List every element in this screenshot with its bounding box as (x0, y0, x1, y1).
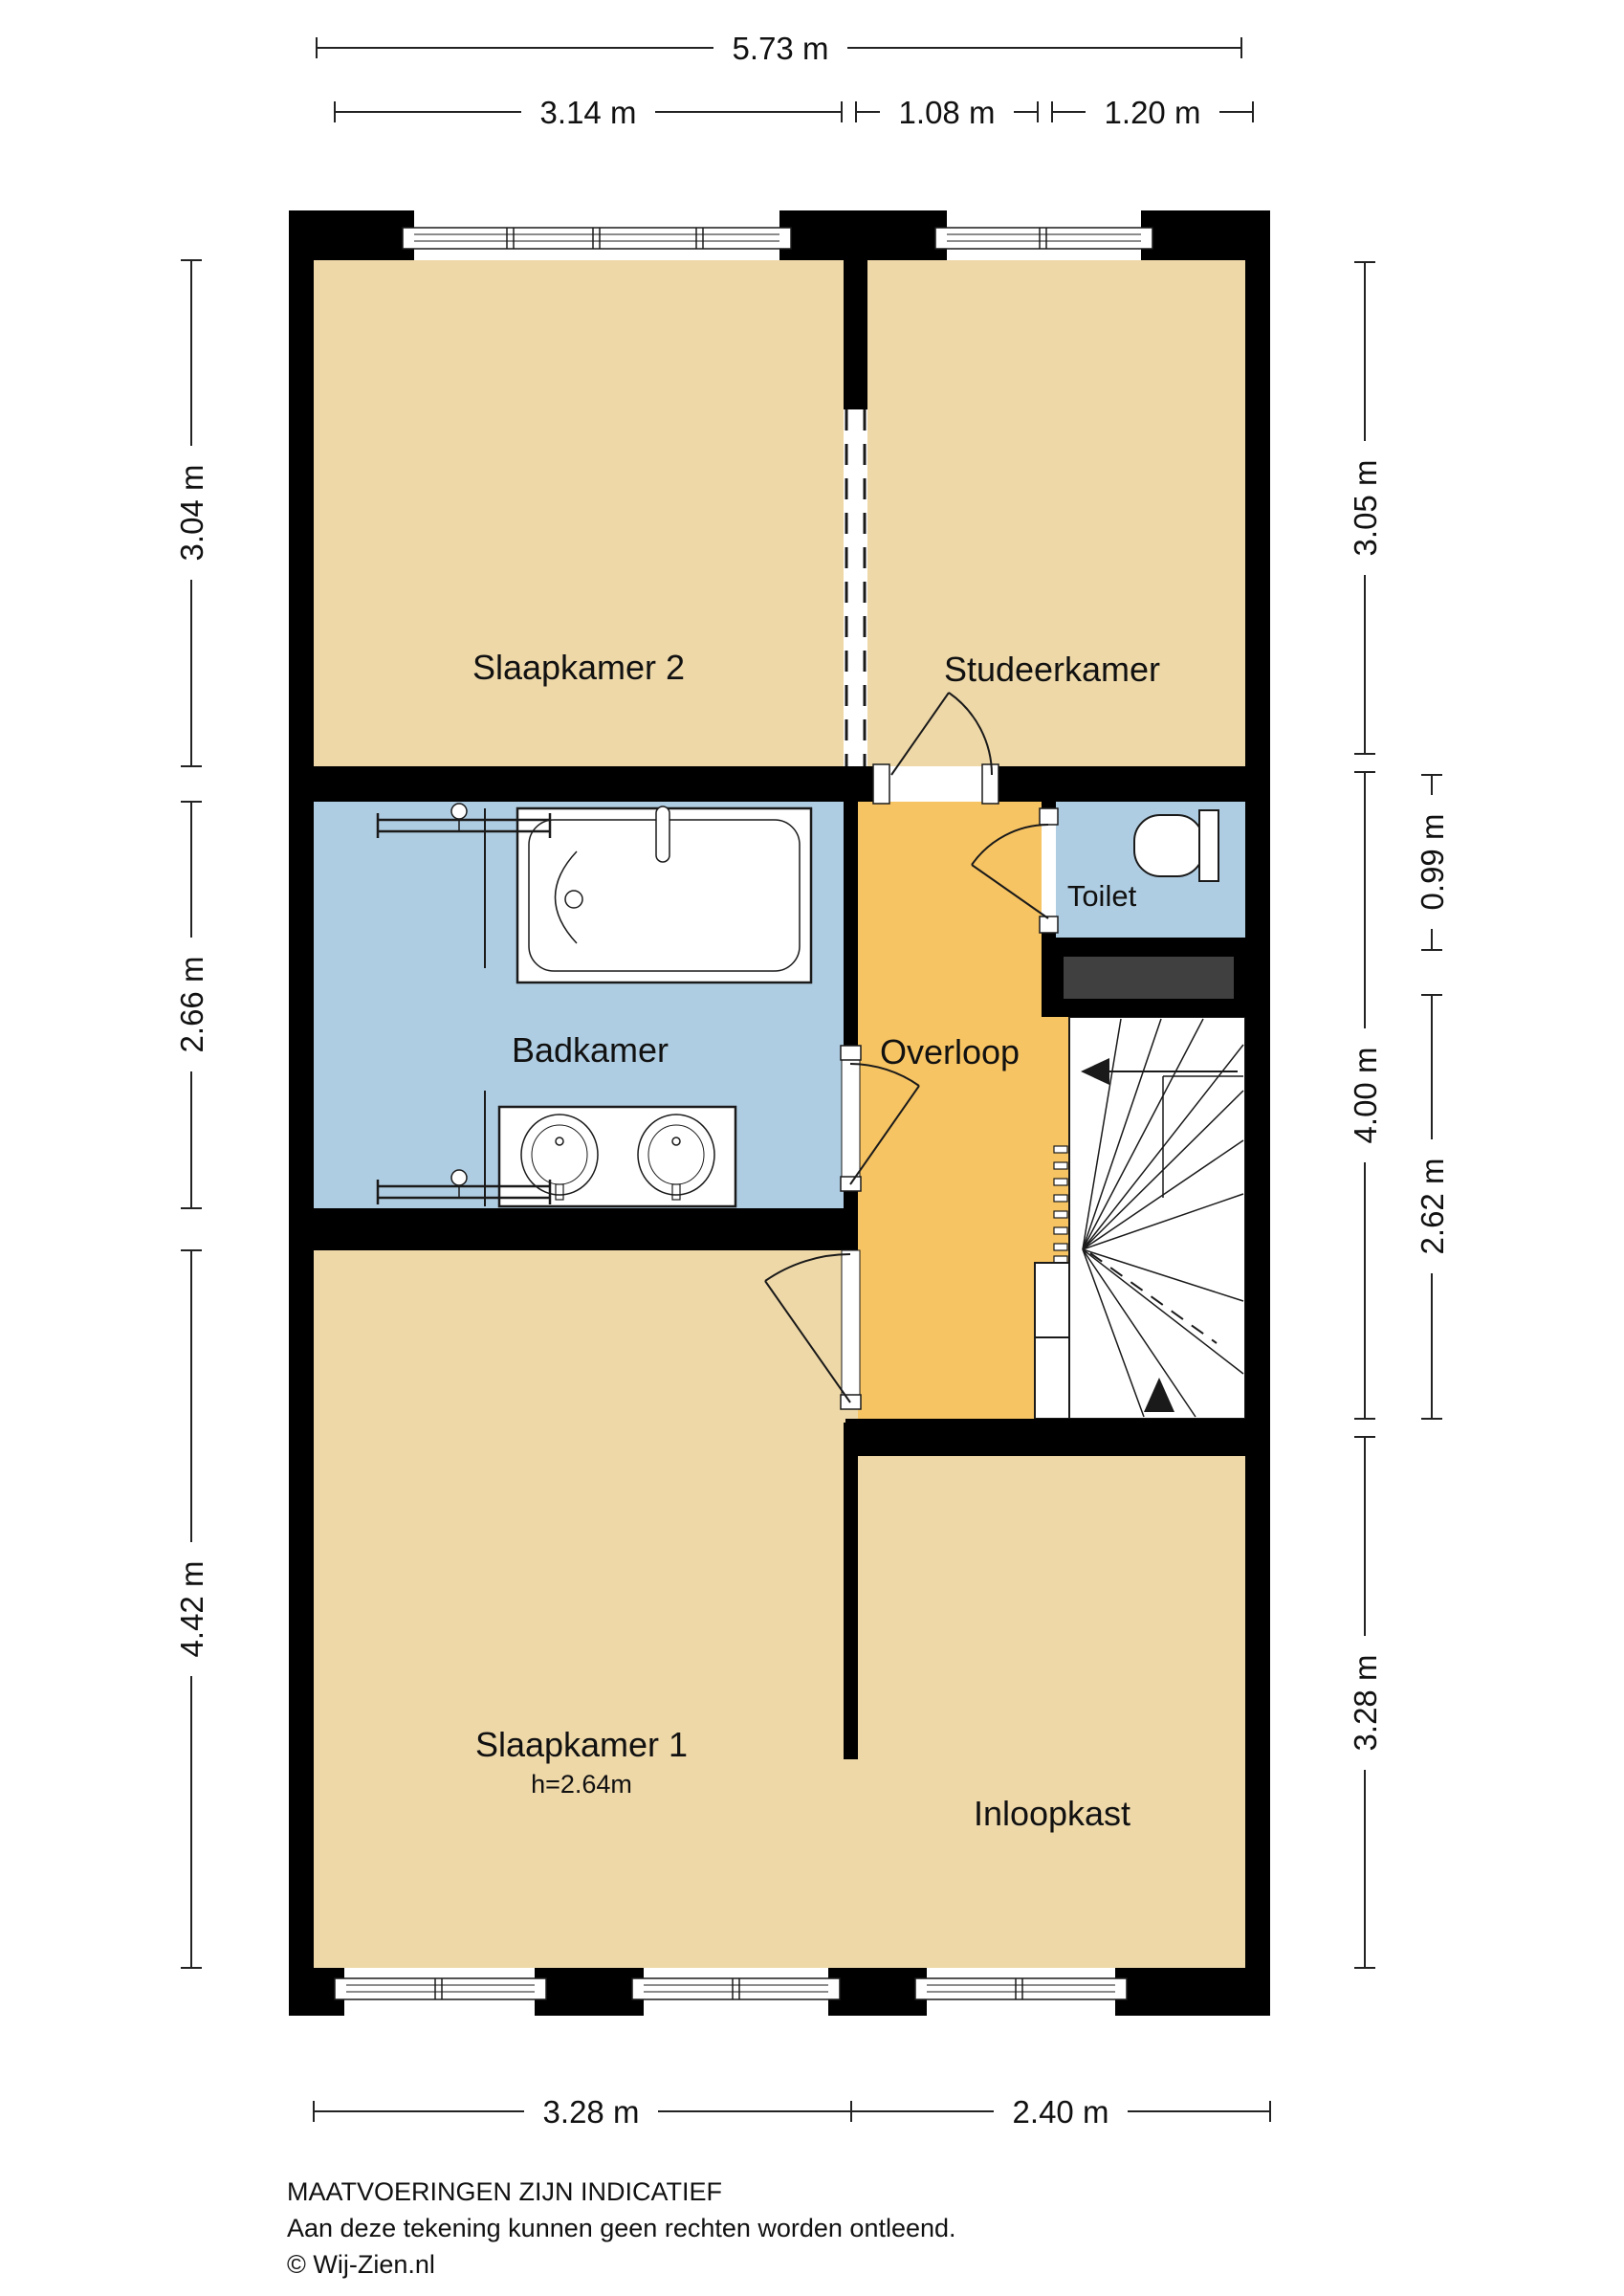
label-overloop: Overloop (880, 1032, 1020, 1071)
wall-north-row-left (314, 766, 875, 802)
dim-right-inner-1: 0.99 m (1415, 814, 1450, 911)
wall-sl1-inloopkast (844, 1423, 858, 1759)
dim-left-2: 2.66 m (174, 957, 209, 1053)
window-slaapkamer2 (403, 228, 791, 249)
opening-dashed-sl2-studeer (844, 409, 867, 766)
stairs-side-cabinet-upper (1035, 1263, 1069, 1337)
label-badkamer: Badkamer (512, 1030, 669, 1070)
footer-disclaimer-title: MAATVOERINGEN ZIJN INDICATIEF (287, 2177, 722, 2206)
label-toilet: Toilet (1067, 879, 1137, 913)
floorplan-canvas: Slaapkamer 2 Studeerkamer Badkamer Toile… (0, 0, 1624, 2296)
wall-bottom-corner-right (1115, 1968, 1270, 2016)
wall-bottom-pier2 (828, 1968, 927, 2016)
bathtub-faucet-icon (656, 806, 669, 862)
shaft (1064, 957, 1234, 999)
label-inloopkast: Inloopkast (974, 1794, 1130, 1833)
dim-top-seg3: 1.20 m (1105, 95, 1201, 130)
wall-north-row-right (997, 766, 1245, 802)
room-inloopkast-floor (858, 1456, 1245, 1968)
toilet-cistern (1199, 810, 1218, 881)
room-studeerkamer-floor (867, 260, 1245, 766)
window-slaapkamer1-left (335, 1978, 546, 1999)
footer-copyright: © Wij-Zien.nl (287, 2250, 435, 2279)
wall-overloop-bottom (845, 1419, 1270, 1456)
label-studeerkamer: Studeerkamer (944, 650, 1160, 689)
label-slaapkamer1-height: h=2.64m (531, 1770, 632, 1799)
dim-left-1: 3.04 m (174, 465, 209, 562)
dim-top-total: 5.73 m (733, 31, 829, 66)
footer: MAATVOERINGEN ZIJN INDICATIEF Aan deze t… (287, 2177, 956, 2279)
dim-bottom-2: 2.40 m (1013, 2094, 1109, 2130)
dim-top-seg2: 1.08 m (899, 95, 996, 130)
dim-bottom-1: 3.28 m (543, 2094, 640, 2130)
dim-right-1: 3.05 m (1348, 460, 1383, 557)
dim-top-seg1: 3.14 m (540, 95, 637, 130)
label-slaapkamer1: Slaapkamer 1 (475, 1725, 688, 1764)
stairs-side-cabinet-lower (1035, 1337, 1069, 1419)
dim-right-3: 3.28 m (1348, 1655, 1383, 1752)
room-slaapkamer1-floor (314, 1250, 858, 1968)
dim-left-3: 4.42 m (174, 1561, 209, 1658)
window-studeerkamer (935, 228, 1152, 249)
wall-top-corner-right (1141, 210, 1270, 260)
wall-outer-left (289, 210, 314, 2016)
wall-outer-right (1245, 210, 1270, 2016)
wall-badkamer-overloop (844, 802, 858, 1046)
window-slaapkamer1-right (632, 1978, 840, 1999)
wall-bottom-pier1 (535, 1968, 644, 2016)
washbasin-cabinet (499, 1107, 735, 1206)
dim-right-2: 4.00 m (1348, 1048, 1383, 1144)
wall-top-corner-left (289, 210, 414, 260)
footer-disclaimer-text: Aan deze tekening kunnen geen rechten wo… (287, 2214, 956, 2242)
wall-sl2-studeer (844, 260, 867, 409)
label-slaapkamer2: Slaapkamer 2 (472, 648, 685, 687)
window-inloopkast (915, 1978, 1127, 1999)
wall-top-pier (779, 210, 947, 260)
wall-badkamer-bottom (314, 1208, 858, 1250)
dim-right-inner-2: 2.62 m (1415, 1159, 1450, 1255)
room-slaapkamer2-floor (314, 260, 844, 766)
toilet-fixture (1134, 810, 1218, 881)
